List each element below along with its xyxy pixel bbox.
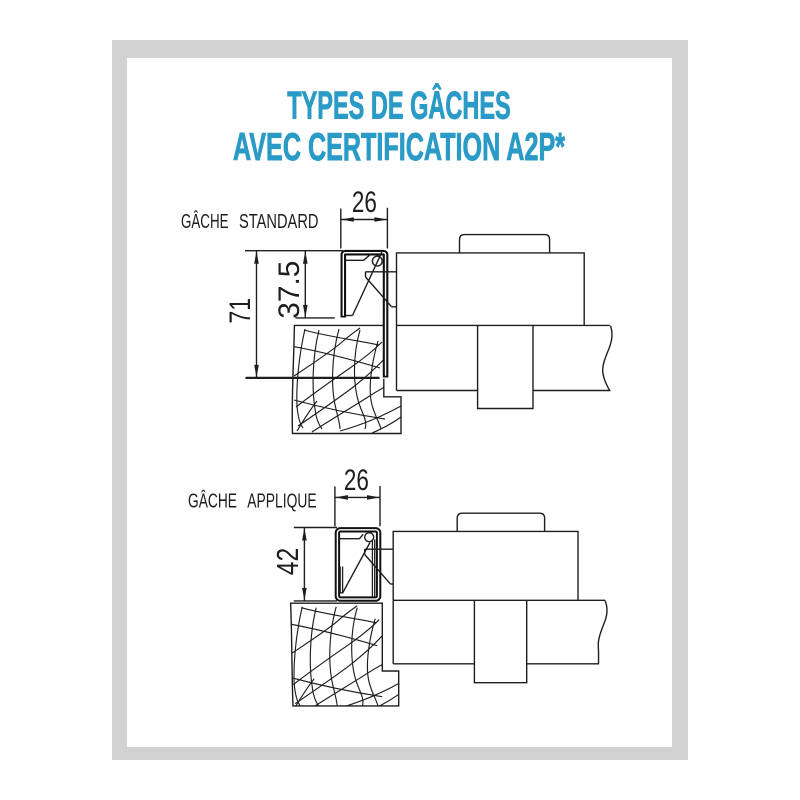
svg-text:42: 42	[270, 548, 305, 576]
svg-text:71: 71	[224, 298, 257, 324]
svg-text:26: 26	[352, 186, 377, 219]
svg-text:GÂCHE: GÂCHE	[188, 490, 237, 513]
svg-text:AVEC CERTIFICATION A2P*: AVEC CERTIFICATION A2P*	[233, 126, 566, 169]
svg-text:TYPES DE GÂCHES: TYPES DE GÂCHES	[287, 84, 511, 128]
svg-text:STANDARD: STANDARD	[239, 210, 319, 233]
svg-text:APPLIQUE: APPLIQUE	[247, 490, 316, 513]
svg-text:26: 26	[344, 464, 369, 497]
svg-text:GÂCHE: GÂCHE	[181, 210, 229, 233]
svg-text:37.5: 37.5	[273, 261, 306, 319]
